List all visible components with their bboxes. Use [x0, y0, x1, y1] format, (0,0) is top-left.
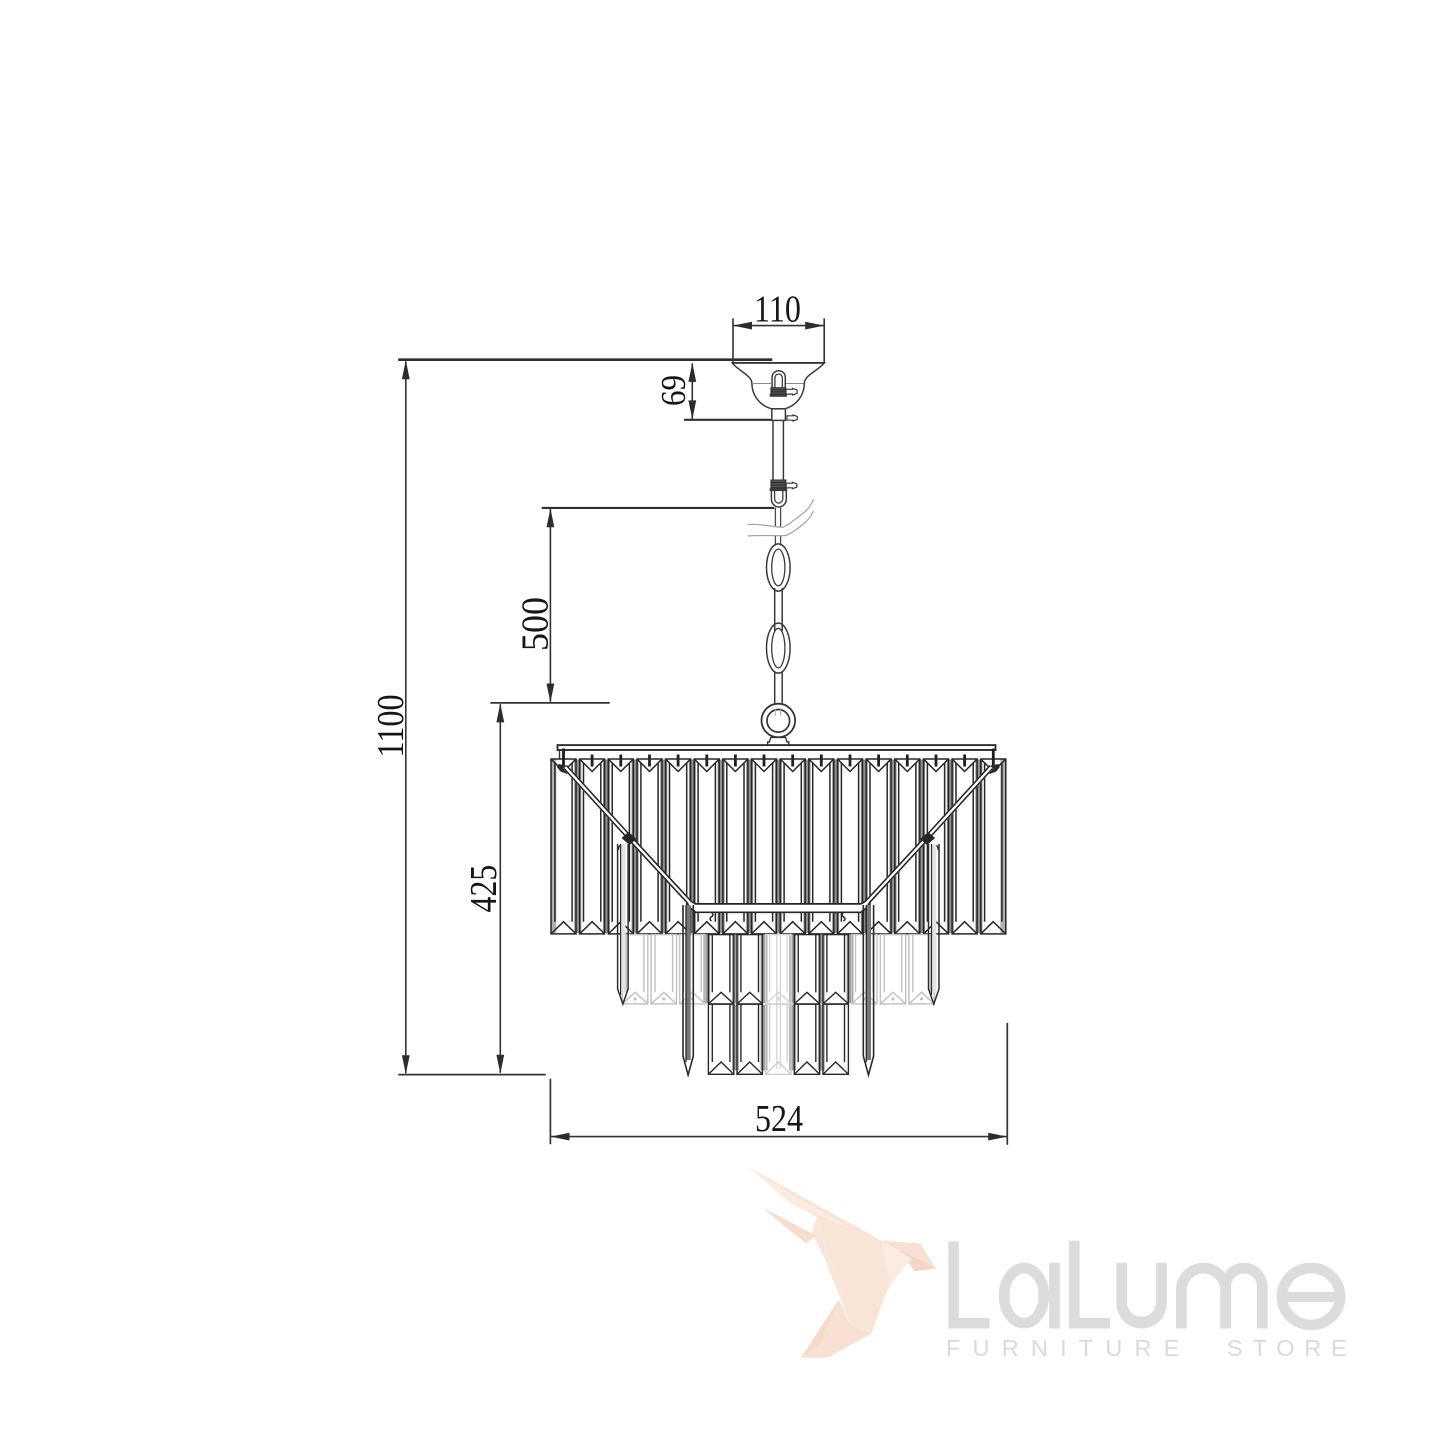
- svg-text:69: 69: [654, 375, 693, 406]
- svg-text:524: 524: [755, 1098, 803, 1140]
- svg-text:1100: 1100: [370, 695, 412, 758]
- svg-text:425: 425: [463, 865, 505, 913]
- svg-text:STORE: STORE: [1227, 1335, 1357, 1361]
- svg-text:500: 500: [514, 597, 556, 651]
- svg-text:FURNITURE: FURNITURE: [946, 1335, 1192, 1361]
- svg-text:110: 110: [754, 289, 801, 331]
